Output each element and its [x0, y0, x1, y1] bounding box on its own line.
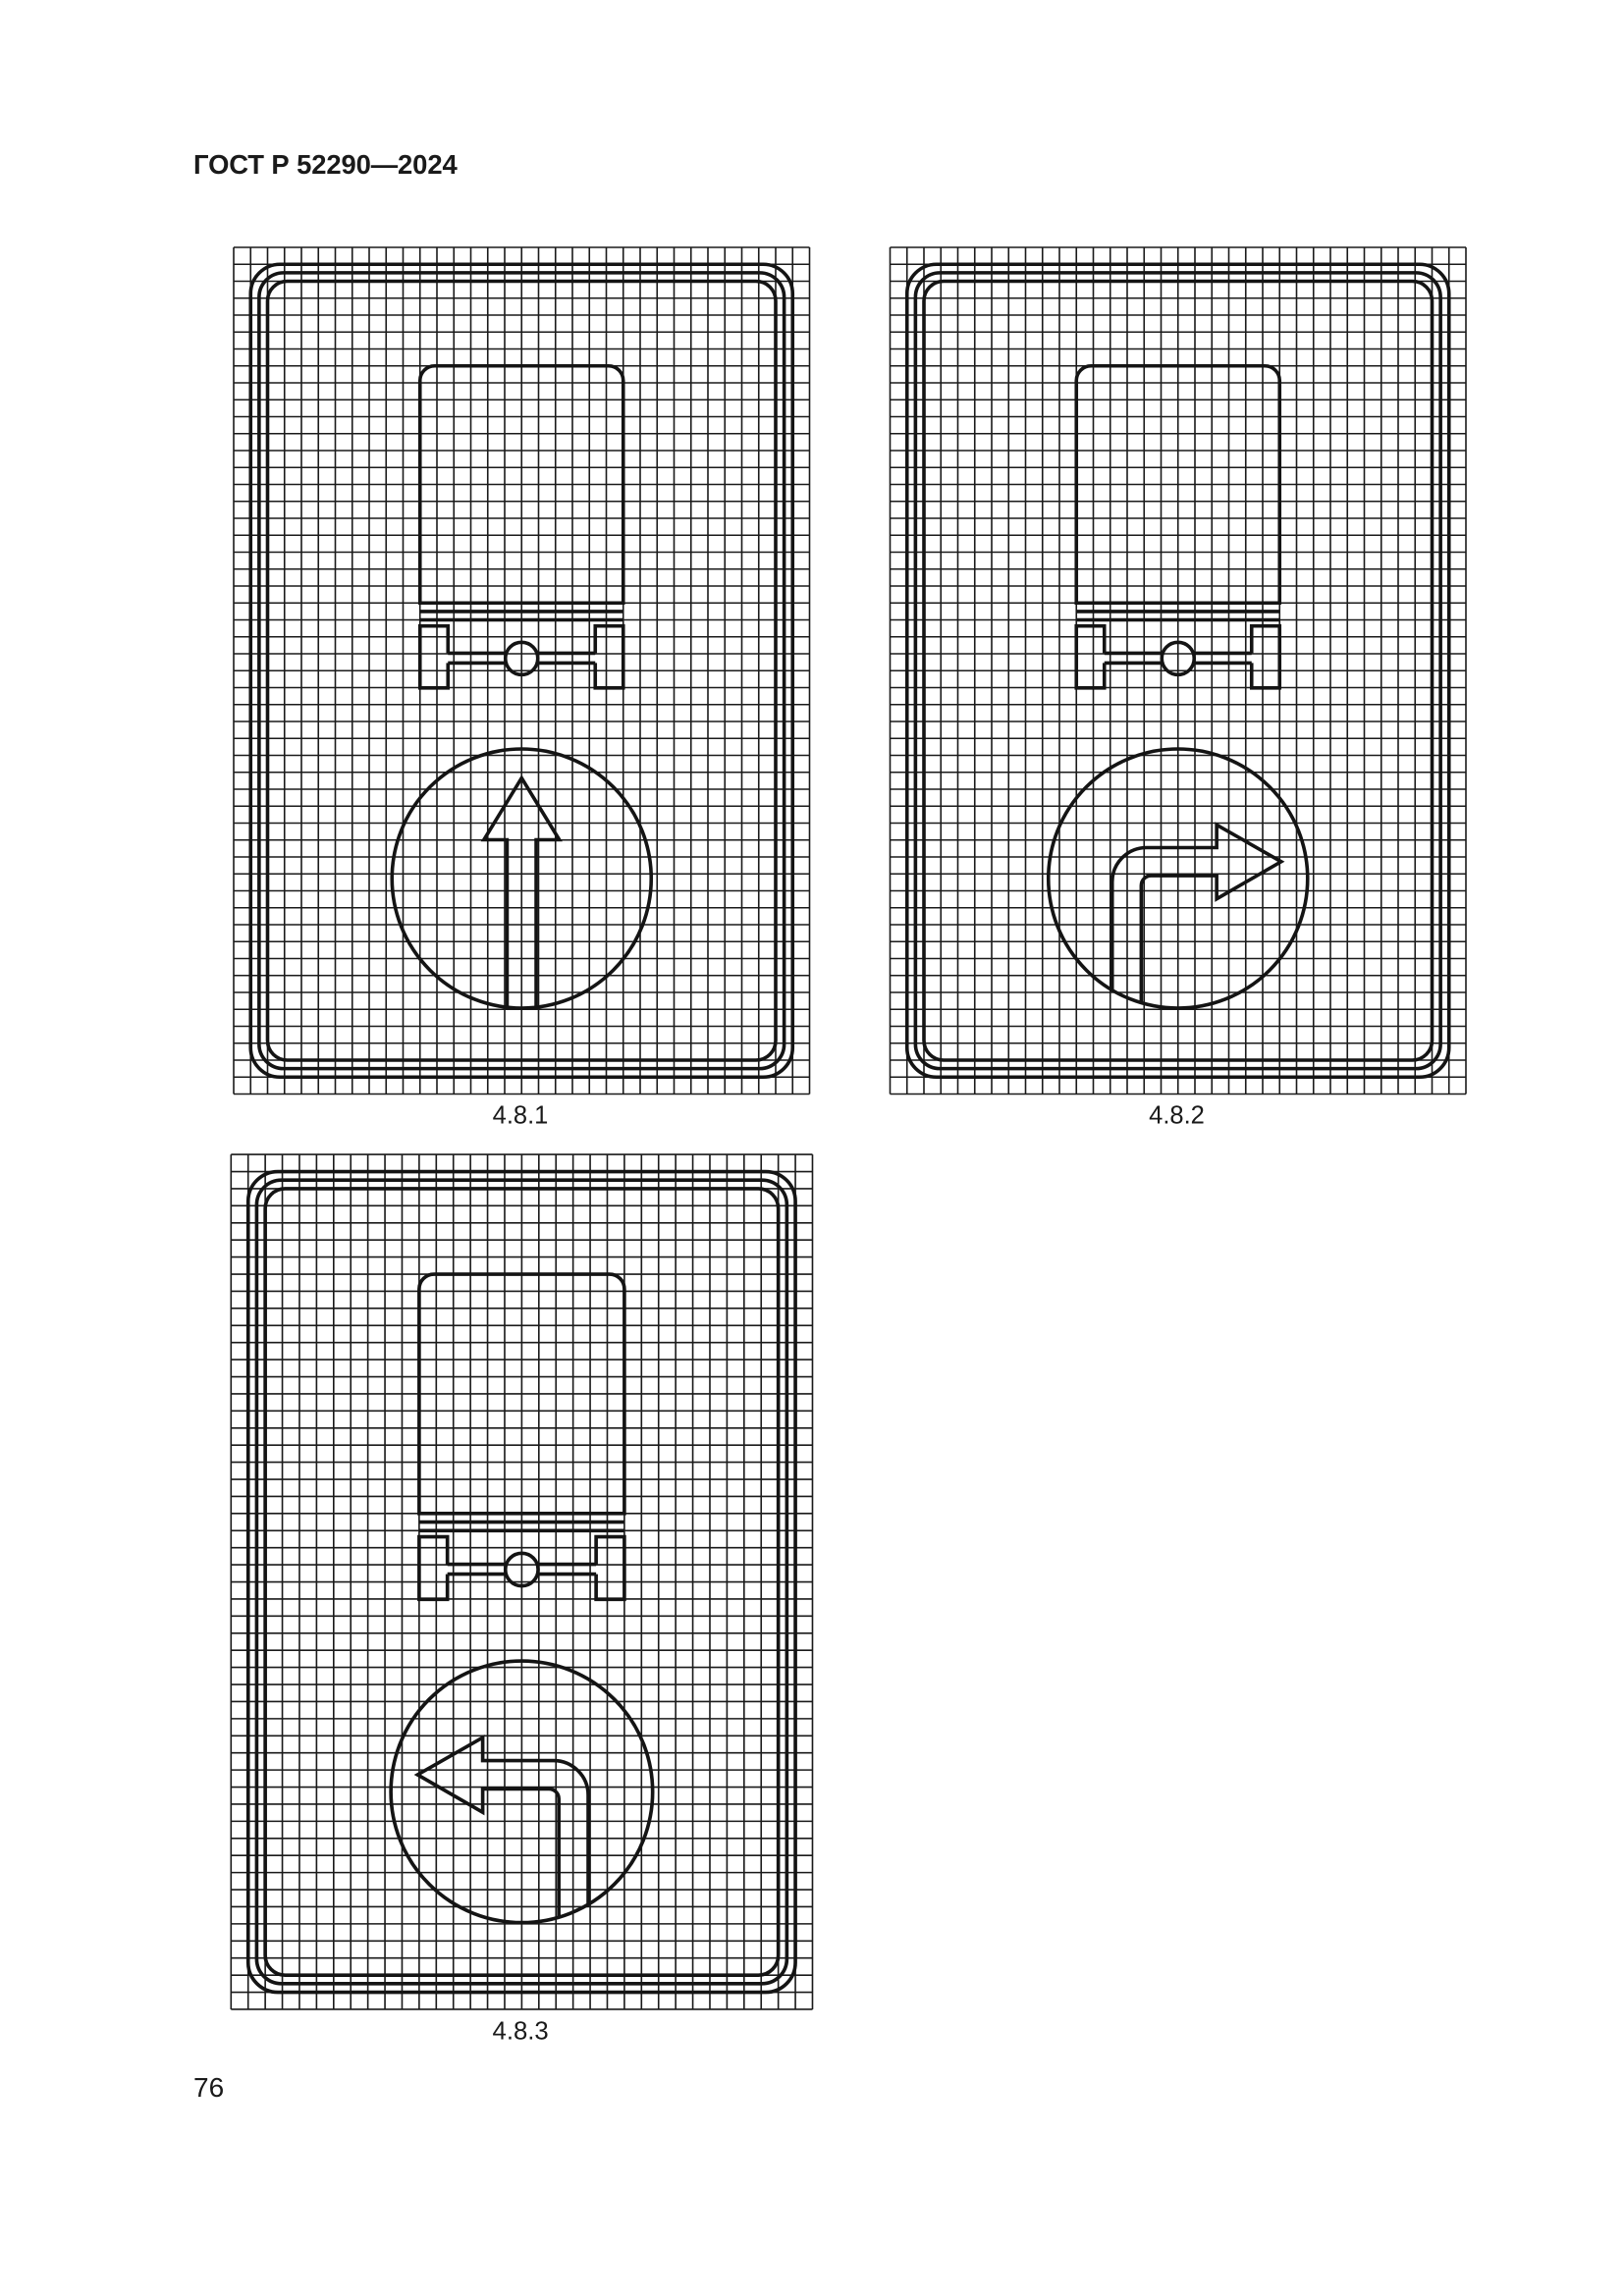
svg-text:4.8.3: 4.8.3	[493, 2017, 549, 2045]
svg-text:4.8.2: 4.8.2	[1149, 1102, 1205, 1130]
svg-text:ГОСТ Р 52290—2024: ГОСТ Р 52290—2024	[193, 149, 458, 180]
svg-text:76: 76	[193, 2072, 224, 2103]
svg-text:4.8.1: 4.8.1	[493, 1102, 549, 1130]
